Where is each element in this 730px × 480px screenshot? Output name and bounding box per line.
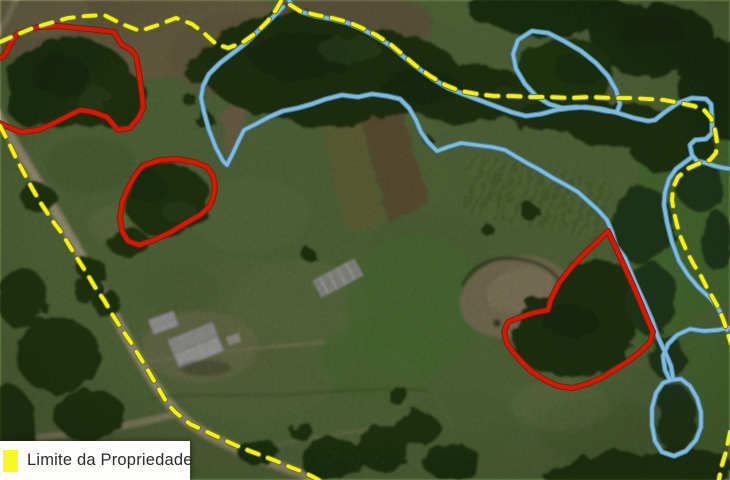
aerial-map-image: Limite da Propriedade [0,0,730,480]
map-canvas [0,0,730,480]
map-legend: Limite da Propriedade [0,441,190,480]
terrain [0,0,730,480]
legend-swatch-property-limit [3,450,18,472]
legend-label-property-limit: Limite da Propriedade [27,451,193,470]
vignette [0,0,730,480]
